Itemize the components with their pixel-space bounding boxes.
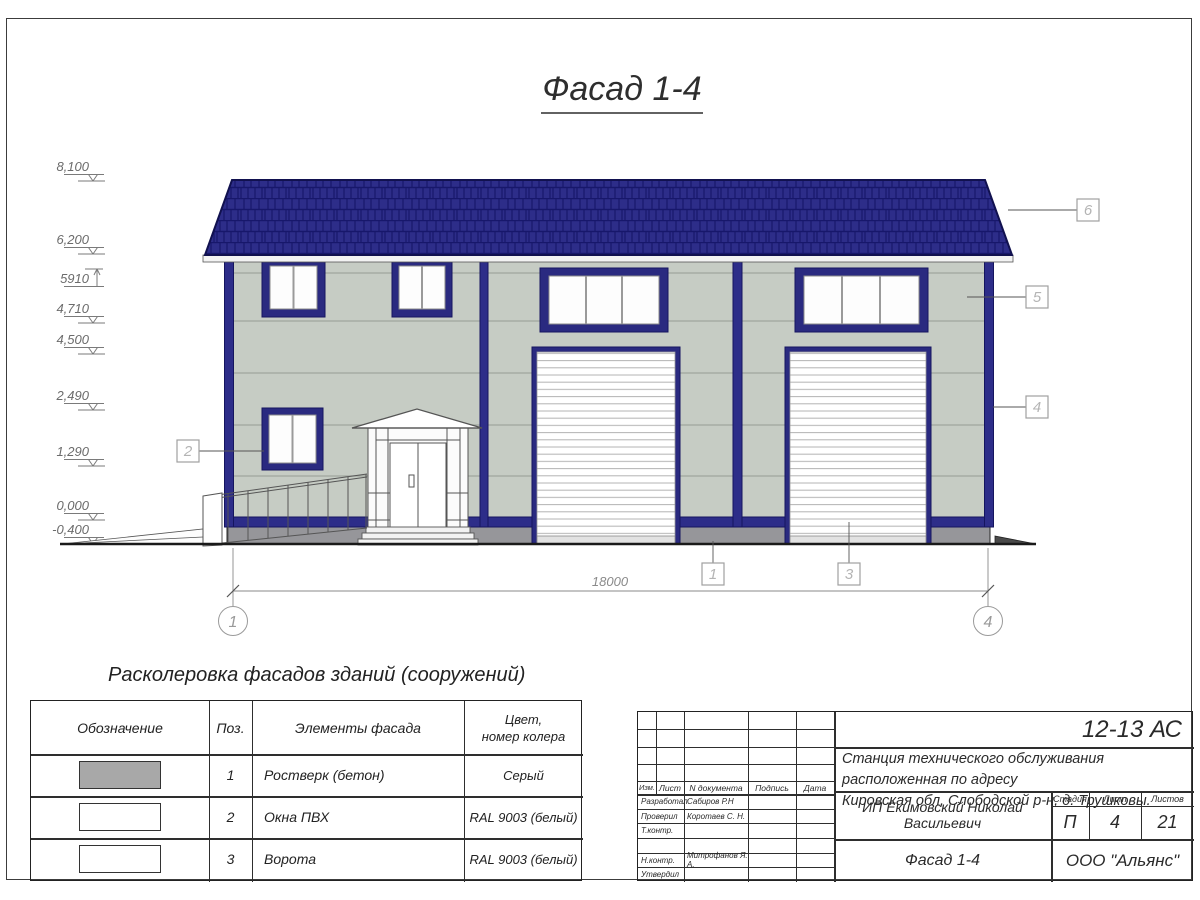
tb-role-name: Митрофанов Я. А. (687, 853, 748, 867)
svg-text:6: 6 (1084, 202, 1093, 219)
svg-text:3: 3 (845, 566, 854, 583)
legend-header-color-line1: Цвет, (505, 711, 542, 728)
window-wide-right (795, 268, 928, 332)
tb-client: ИП Екимовский Николай Васильевич (834, 791, 1051, 839)
tb-role: Разработал (641, 794, 684, 809)
legend-pos: 1 (209, 754, 252, 796)
tb-role-name: Коротаев С. Н. (687, 809, 748, 823)
svg-text:4,500: 4,500 (56, 332, 89, 347)
axis-1: 1 (219, 607, 248, 636)
legend-header-designation: Обозначение (31, 701, 209, 754)
legend-title: Расколеровка фасадов зданий (сооружений) (108, 664, 525, 687)
svg-text:-0,400: -0,400 (52, 522, 90, 537)
svg-text:2,490: 2,490 (55, 388, 89, 403)
ramp-side-panel (203, 493, 222, 546)
entrance-porch (352, 409, 482, 545)
gate-right (785, 347, 931, 544)
roof (205, 180, 1012, 255)
tb-company: ООО "Альянс" (1051, 839, 1194, 882)
window-first-floor (262, 408, 323, 470)
svg-text:Фасад 1-4: Фасад 1-4 (542, 70, 701, 108)
callout-1: 1 (702, 541, 724, 585)
svg-text:4: 4 (1033, 399, 1041, 416)
legend-color: RAL 9003 (белый) (464, 838, 583, 880)
eave-strip (203, 255, 1013, 262)
tb-project-line1: Станция технического обслуживания распол… (842, 749, 1190, 791)
legend-swatch-cell (31, 796, 209, 838)
tb-role (641, 838, 684, 853)
legend-header-element: Элементы фасада (252, 701, 464, 754)
elevation-mark: 4,500 (56, 332, 105, 354)
title-block: Изм. Лист N документа Подпись Дата Разра… (637, 711, 1193, 881)
svg-text:0,000: 0,000 (56, 498, 89, 513)
swatch-gray (79, 761, 161, 789)
tb-role: Н.контр. (641, 853, 684, 867)
svg-text:5910: 5910 (60, 271, 90, 286)
window-small-1 (262, 259, 325, 317)
tb-role: Утвердил (641, 867, 684, 882)
tb-stage-label: Стадия (1051, 791, 1089, 806)
tb-role: Т.контр. (641, 823, 684, 838)
tb-doc-code: 12-13 АС (834, 712, 1182, 747)
tb-stage-value: П (1051, 806, 1089, 839)
legend-color: Серый (464, 754, 583, 796)
window-wide-left (540, 268, 668, 332)
legend-swatch-cell (31, 838, 209, 880)
elevation-mark: 6,200 (56, 232, 105, 254)
tb-sheet-value: 4 (1089, 806, 1141, 839)
legend-header-color: Цвет, номер колера (464, 701, 583, 754)
tb-project-description: Станция технического обслуживания распол… (842, 749, 1190, 791)
svg-text:1,290: 1,290 (56, 444, 89, 459)
legend-table: Обозначение Поз. Элементы фасада Цвет, н… (30, 700, 582, 881)
gate-left (532, 347, 680, 544)
svg-text:1: 1 (709, 566, 717, 583)
tb-role: Проверил (641, 809, 684, 823)
swatch-white (79, 803, 161, 831)
elevation-marks: 8,100 6,200 5910 4,710 4,500 (52, 159, 105, 544)
legend-color: RAL 9003 (белый) (464, 796, 583, 838)
tb-role-name: Сабиров Р.Н (687, 794, 748, 809)
svg-text:4,710: 4,710 (56, 301, 89, 316)
tb-sheets-value: 21 (1141, 806, 1194, 839)
svg-text:6,200: 6,200 (56, 232, 89, 247)
drawing-sheet: Фасад 1-4 8,100 6,200 5910 4,710 (0, 0, 1200, 900)
legend-header-color-line2: номер колера (482, 728, 565, 745)
elevation-mark: 2,490 (55, 388, 105, 410)
tb-col-list: Лист (656, 781, 684, 794)
window-small-2 (392, 259, 452, 317)
tb-role-name (687, 823, 748, 838)
legend-header-pos: Поз. (209, 701, 252, 754)
svg-text:4: 4 (984, 614, 993, 631)
elevation-mark: 8,100 (56, 159, 105, 181)
svg-text:18000: 18000 (592, 574, 629, 589)
drawing-title: Фасад 1-4 (541, 70, 703, 113)
porch-steps (358, 527, 478, 545)
dimension-18000: 18000 (227, 548, 994, 606)
svg-text:5: 5 (1033, 289, 1042, 306)
tb-col-doc: N документа (684, 781, 748, 794)
building-facade (60, 180, 1036, 546)
swatch-white (79, 845, 161, 873)
tb-col-sign: Подпись (748, 781, 796, 794)
legend-element: Ворота (264, 838, 464, 880)
elevation-mark: 1,290 (56, 444, 105, 466)
elevation-mark: 0,000 (56, 498, 105, 520)
legend-swatch-cell (31, 754, 209, 796)
legend-pos: 2 (209, 796, 252, 838)
axis-4: 4 (974, 607, 1003, 636)
tb-sheets-label: Листов (1141, 791, 1194, 806)
svg-text:1: 1 (229, 614, 238, 631)
legend-element: Ростверк (бетон) (264, 754, 464, 796)
elevation-mark-arrow-up: 5910 (60, 269, 104, 287)
svg-text:2: 2 (183, 443, 193, 460)
callout-6: 6 (1008, 199, 1099, 221)
tb-sheet-label: Лист (1089, 791, 1141, 806)
axis-grid-marks: 1 4 (219, 607, 1003, 636)
tb-col-izm: Изм. (638, 781, 656, 794)
legend-element: Окна ПВХ (264, 796, 464, 838)
legend-pos: 3 (209, 838, 252, 880)
door-handle (409, 475, 414, 487)
svg-text:8,100: 8,100 (56, 159, 89, 174)
callout-4: 4 (993, 396, 1048, 418)
tb-role-name (687, 867, 748, 882)
tb-sheet-title: Фасад 1-4 (834, 839, 1051, 882)
elevation-mark: 4,710 (56, 301, 105, 323)
tb-col-date: Дата (796, 781, 834, 794)
